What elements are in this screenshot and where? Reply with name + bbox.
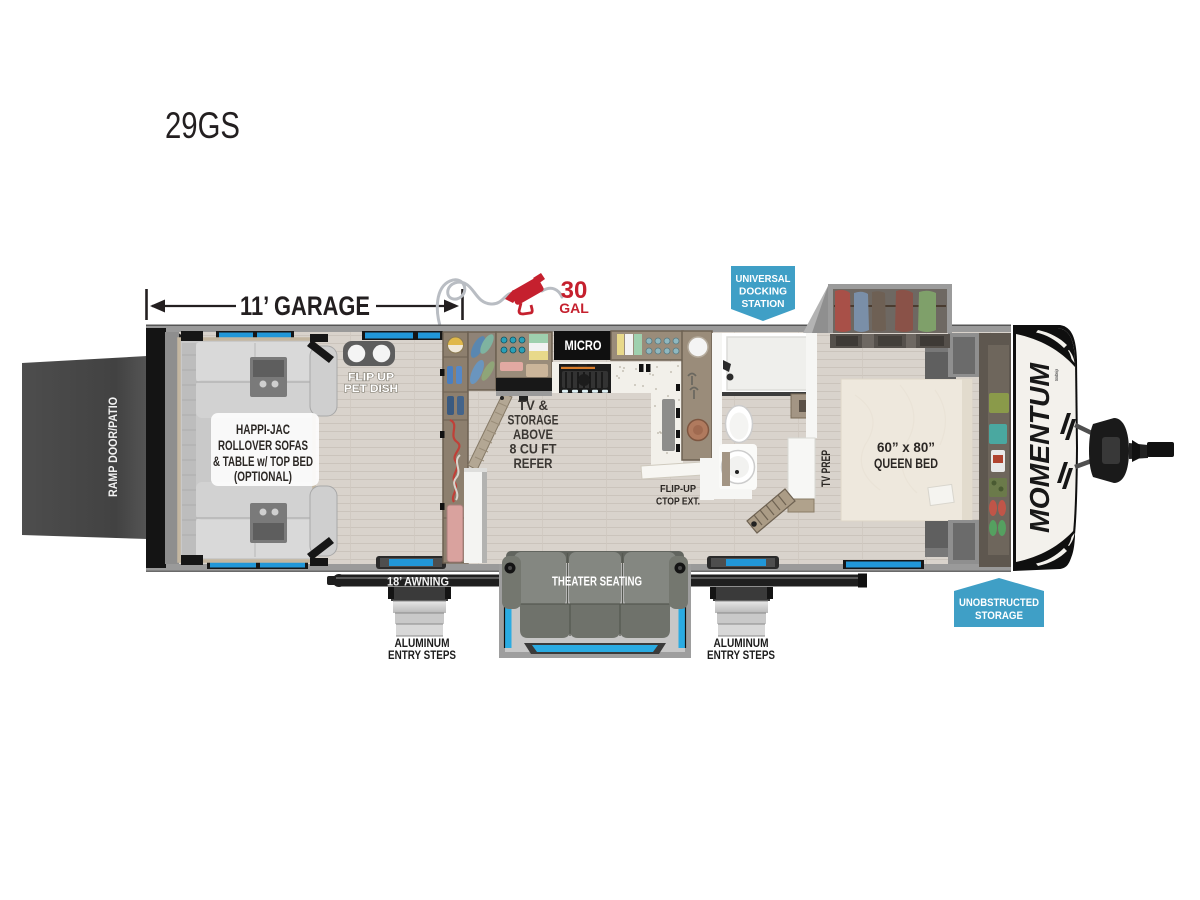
svg-text:60” x 80”: 60” x 80” [877,439,935,455]
svg-text:ENTRY STEPS: ENTRY STEPS [388,648,456,662]
svg-text:UNOBSTRUCTED: UNOBSTRUCTED [959,597,1039,609]
svg-text:CTOP EXT.: CTOP EXT. [656,496,700,508]
svg-text:MOMENTUM: MOMENTUM [1024,362,1055,533]
svg-text:REFER: REFER [514,455,553,471]
svg-text:RAMP DOOR/PATIO: RAMP DOOR/PATIO [106,397,120,497]
svg-text:STORAGE: STORAGE [975,610,1023,622]
svg-text:TV PREP: TV PREP [821,450,833,487]
svg-text:FLIP UP: FLIP UP [348,372,394,384]
svg-text:29GS: 29GS [165,105,240,146]
svg-text:HAPPI-JAC: HAPPI-JAC [236,422,290,437]
svg-text:STATION: STATION [742,298,785,310]
svg-text:QUEEN BED: QUEEN BED [874,455,938,471]
svg-text:ENTRY STEPS: ENTRY STEPS [707,648,775,662]
svg-text:THEATER SEATING: THEATER SEATING [552,575,642,589]
svg-text:18’ AWNING: 18’ AWNING [387,575,449,589]
svg-text:DOCKING: DOCKING [739,286,787,298]
svg-text:UNIVERSAL: UNIVERSAL [736,273,792,285]
svg-text:ROLLOVER SOFAS: ROLLOVER SOFAS [218,438,308,453]
svg-text:GAL: GAL [559,300,589,316]
svg-text:(OPTIONAL): (OPTIONAL) [234,469,292,484]
svg-text:PET DISH: PET DISH [344,383,398,395]
svg-text:FLIP-UP: FLIP-UP [660,483,696,495]
svg-text:GrandDesign: GrandDesign [1054,369,1059,381]
svg-text:& TABLE w/ TOP BED: & TABLE w/ TOP BED [213,454,313,469]
svg-text:11’ GARAGE: 11’ GARAGE [240,291,370,321]
svg-text:MICRO: MICRO [565,338,602,353]
